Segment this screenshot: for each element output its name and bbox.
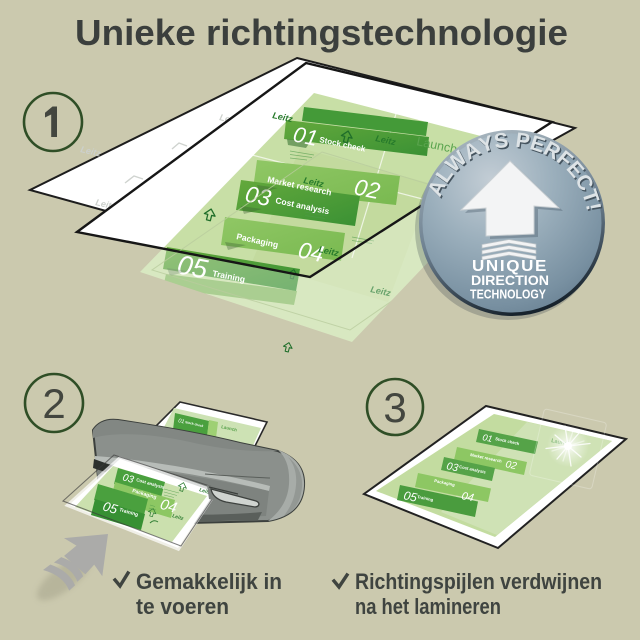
svg-text:3: 3: [383, 384, 406, 431]
svg-text:na het lamineren: na het lamineren: [355, 594, 501, 619]
svg-text:S: S: [493, 129, 510, 154]
svg-text:01: 01: [482, 432, 494, 444]
svg-text:TECHNOLOGY: TECHNOLOGY: [470, 288, 547, 302]
svg-text:Unieke richtingstechnologie: Unieke richtingstechnologie: [75, 12, 568, 53]
svg-text:DIRECTION: DIRECTION: [471, 273, 549, 288]
svg-text:te voeren: te voeren: [136, 594, 229, 619]
svg-text:04: 04: [460, 490, 474, 504]
svg-text:Richtingspijlen verdwijnen: Richtingspijlen verdwijnen: [355, 569, 602, 594]
svg-text:Gemakkelijk in: Gemakkelijk in: [136, 569, 282, 594]
svg-text:01: 01: [291, 121, 320, 151]
svg-text:2: 2: [42, 380, 65, 427]
